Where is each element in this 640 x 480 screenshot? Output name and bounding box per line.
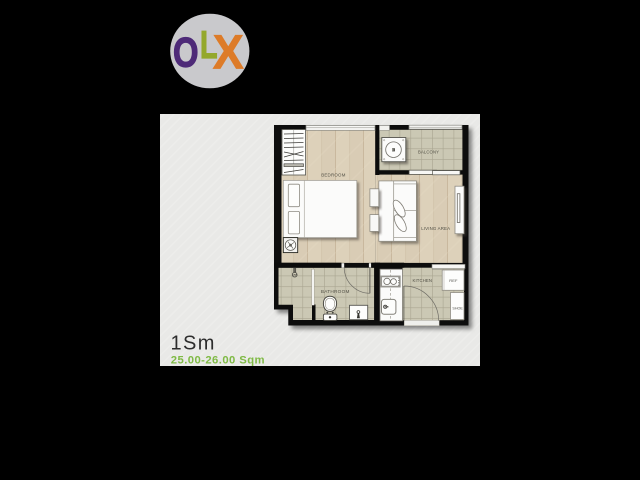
svg-text:BALCONY: BALCONY	[418, 149, 439, 154]
svg-text:BATHROOM: BATHROOM	[321, 289, 350, 294]
svg-text:SHOE: SHOE	[452, 306, 463, 310]
svg-text:REF: REF	[449, 278, 458, 283]
svg-text:BEDROOM: BEDROOM	[321, 172, 346, 177]
svg-text:X: X	[213, 27, 244, 80]
svg-text:1Sm: 1Sm	[171, 333, 216, 355]
svg-text:KITCHEN: KITCHEN	[413, 278, 433, 283]
svg-text:25.00-26.00 Sqm: 25.00-26.00 Sqm	[171, 354, 265, 366]
svg-text:LIVING AREA: LIVING AREA	[421, 226, 450, 231]
svg-text:O: O	[173, 29, 199, 76]
